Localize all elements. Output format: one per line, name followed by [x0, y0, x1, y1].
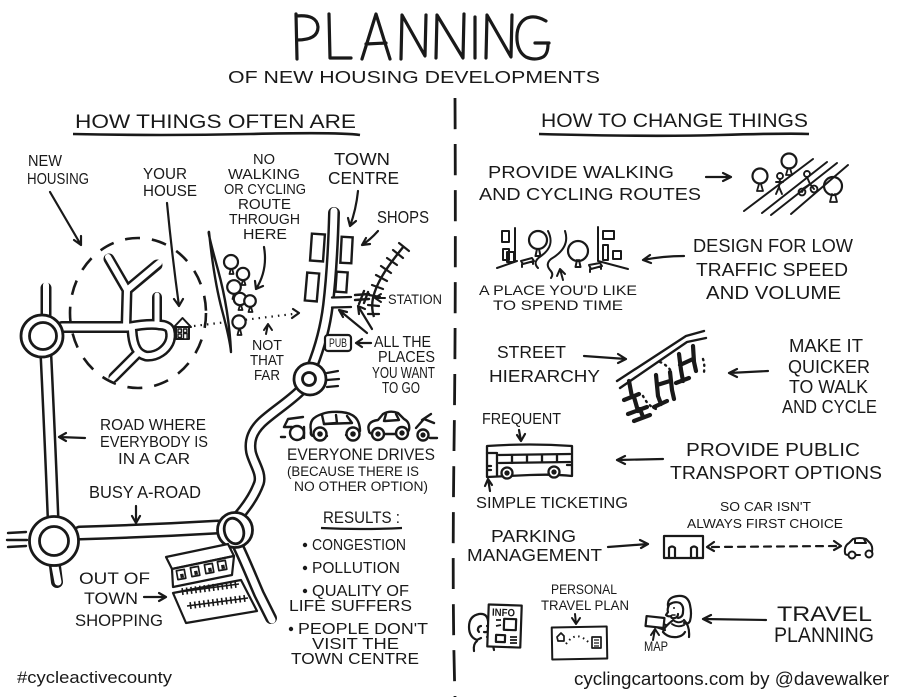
svg-text:HERE: HERE — [243, 227, 287, 243]
svg-text:OR CYCLING: OR CYCLING — [224, 182, 306, 198]
svg-text:EVERYBODY IS: EVERYBODY IS — [100, 434, 208, 451]
svg-text:SO CAR ISN'T: SO CAR ISN'T — [720, 499, 811, 514]
svg-text:CENTRE: CENTRE — [328, 168, 399, 188]
svg-text:AND VOLUME: AND VOLUME — [706, 283, 841, 303]
svg-text:ALWAYS FIRST CHOICE: ALWAYS FIRST CHOICE — [687, 516, 843, 531]
svg-text:DESIGN FOR LOW: DESIGN FOR LOW — [693, 236, 853, 256]
svg-text:TOWN: TOWN — [334, 149, 390, 169]
svg-text:BUSY A-ROAD: BUSY A-ROAD — [89, 482, 201, 502]
svg-text:TOWN: TOWN — [84, 589, 138, 608]
svg-text:PROVIDE WALKING: PROVIDE WALKING — [488, 162, 674, 182]
svg-text:TRAFFIC SPEED: TRAFFIC SPEED — [696, 260, 848, 280]
svg-text:TOWN CENTRE: TOWN CENTRE — [291, 651, 419, 668]
svg-text:SIMPLE TICKETING: SIMPLE TICKETING — [476, 495, 628, 512]
svg-text:INFO: INFO — [492, 607, 515, 620]
svg-text:THROUGH: THROUGH — [229, 212, 300, 228]
svg-text:WALKING: WALKING — [228, 167, 300, 183]
svg-text:HIERARCHY: HIERARCHY — [489, 366, 600, 386]
svg-text:MANAGEMENT: MANAGEMENT — [467, 545, 602, 565]
svg-text:LIFE SUFFERS: LIFE SUFFERS — [289, 598, 412, 615]
svg-text:NO OTHER OPTION): NO OTHER OPTION) — [294, 479, 428, 494]
svg-text:MAKE IT: MAKE IT — [789, 336, 863, 356]
svg-text:PUB: PUB — [329, 336, 347, 350]
svg-text:ROUTE: ROUTE — [238, 197, 291, 213]
svg-text:AND CYCLE: AND CYCLE — [782, 397, 877, 417]
svg-text:OUT OF: OUT OF — [79, 569, 150, 588]
svg-text:AND CYCLING ROUTES: AND CYCLING ROUTES — [479, 184, 701, 204]
svg-text:TRANSPORT OPTIONS: TRANSPORT OPTIONS — [670, 463, 882, 483]
svg-text:ROAD WHERE: ROAD WHERE — [100, 417, 206, 434]
svg-text:PLANNING: PLANNING — [774, 624, 874, 647]
svg-text:HOW TO CHANGE THINGS: HOW TO CHANGE THINGS — [541, 110, 808, 132]
svg-text:TO GO: TO GO — [382, 380, 420, 397]
svg-text:CONGESTION: CONGESTION — [312, 537, 406, 554]
svg-text:SHOPPING: SHOPPING — [75, 611, 163, 630]
svg-text:TRAVEL: TRAVEL — [777, 603, 872, 626]
svg-text:POLLUTION: POLLUTION — [312, 560, 400, 577]
svg-text:TO WALK: TO WALK — [789, 377, 868, 397]
svg-text:HOW THINGS OFTEN ARE: HOW THINGS OFTEN ARE — [75, 112, 356, 133]
svg-text:FREQUENT: FREQUENT — [482, 411, 561, 428]
svg-text:TO SPEND TIME: TO SPEND TIME — [493, 297, 623, 313]
svg-text:FAR: FAR — [254, 367, 280, 384]
svg-text:EVERYONE DRIVES: EVERYONE DRIVES — [287, 445, 435, 464]
svg-text:HOUSE: HOUSE — [143, 183, 197, 200]
svg-text:PROVIDE PUBLIC: PROVIDE PUBLIC — [686, 440, 860, 460]
svg-text:MAP: MAP — [644, 639, 668, 654]
svg-text:PARKING: PARKING — [491, 526, 576, 546]
svg-text:PERSONAL: PERSONAL — [551, 582, 617, 597]
svg-text:cyclingcartoons.com by @davewa: cyclingcartoons.com by @davewalker — [574, 669, 889, 689]
svg-text:NO: NO — [253, 152, 275, 168]
svg-text:A PLACE YOU'D LIKE: A PLACE YOU'D LIKE — [479, 282, 637, 298]
svg-text:STATION: STATION — [388, 292, 442, 307]
svg-text:OF NEW HOUSING DEVELOPMENTS: OF NEW HOUSING DEVELOPMENTS — [228, 67, 600, 87]
svg-text:HOUSING: HOUSING — [27, 171, 89, 188]
svg-text:QUICKER: QUICKER — [788, 357, 870, 377]
svg-text:#cycleactivecounty: #cycleactivecounty — [17, 668, 173, 687]
svg-text:STREET: STREET — [497, 342, 566, 362]
svg-text:SHOPS: SHOPS — [377, 207, 429, 227]
svg-text:PLACES: PLACES — [378, 349, 435, 366]
svg-text:TRAVEL PLAN: TRAVEL PLAN — [541, 598, 629, 613]
svg-text:NEW: NEW — [28, 153, 63, 170]
svg-text:IN A CAR: IN A CAR — [118, 451, 190, 468]
svg-text:YOUR: YOUR — [143, 166, 187, 183]
svg-text:(BECAUSE THERE IS: (BECAUSE THERE IS — [287, 464, 419, 479]
svg-text:RESULTS :: RESULTS : — [323, 509, 400, 527]
